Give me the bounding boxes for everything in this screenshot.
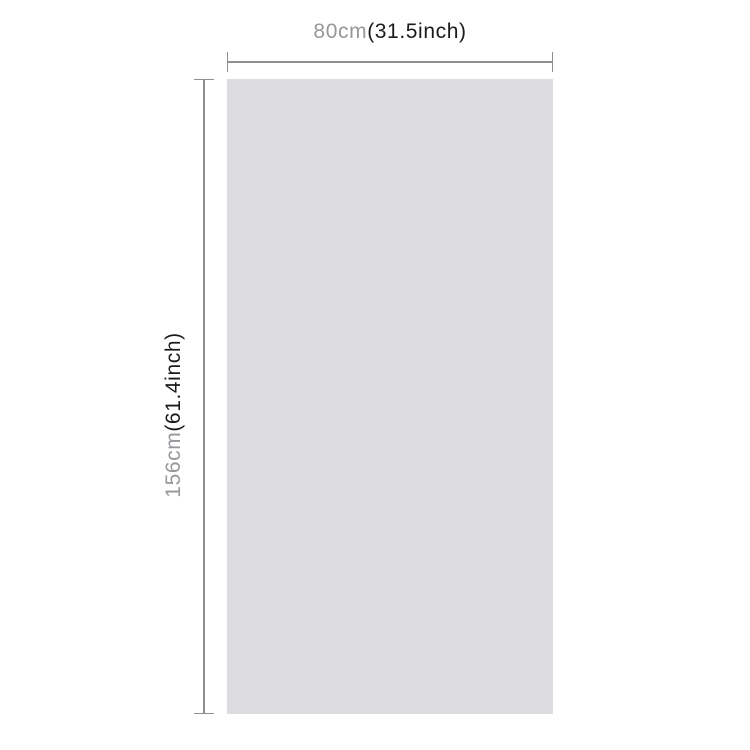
height-dimension-top-tick — [194, 79, 214, 81]
width-dimension-right-tick — [552, 52, 554, 72]
height-dimension-label: 156cm(61.4inch) — [161, 332, 187, 497]
width-dimension-left-tick — [227, 52, 229, 72]
width-imperial-value: (31.5inch) — [367, 20, 466, 43]
height-dimension-bottom-tick — [194, 713, 214, 715]
width-dimension-line — [227, 61, 553, 63]
height-imperial-value: (61.4inch) — [162, 332, 185, 431]
width-metric-value: 80cm — [313, 20, 367, 43]
height-metric-value: 156cm — [162, 432, 185, 498]
product-panel — [227, 79, 553, 714]
height-dimension-line — [203, 79, 205, 714]
width-dimension-label: 80cm(31.5inch) — [227, 19, 553, 45]
product-dimension-diagram: 80cm(31.5inch) 156cm(61.4inch) — [0, 0, 750, 750]
